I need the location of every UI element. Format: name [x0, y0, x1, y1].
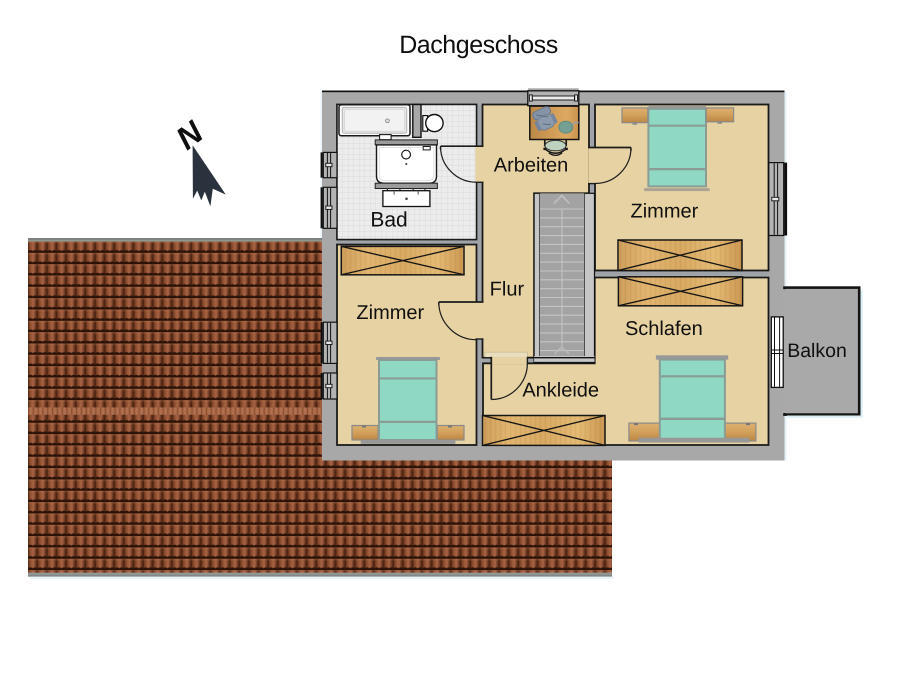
- svg-text:Dachgeschoss: Dachgeschoss: [399, 31, 558, 59]
- svg-text:Arbeiten: Arbeiten: [494, 155, 569, 177]
- svg-text:Balkon: Balkon: [787, 340, 847, 362]
- svg-text:Bad: Bad: [370, 208, 407, 231]
- svg-text:Ankleide: Ankleide: [522, 380, 599, 402]
- svg-text:Zimmer: Zimmer: [356, 302, 424, 324]
- svg-text:Zimmer: Zimmer: [631, 200, 699, 222]
- svg-text:Flur: Flur: [490, 279, 525, 301]
- svg-text:Schlafen: Schlafen: [625, 318, 703, 340]
